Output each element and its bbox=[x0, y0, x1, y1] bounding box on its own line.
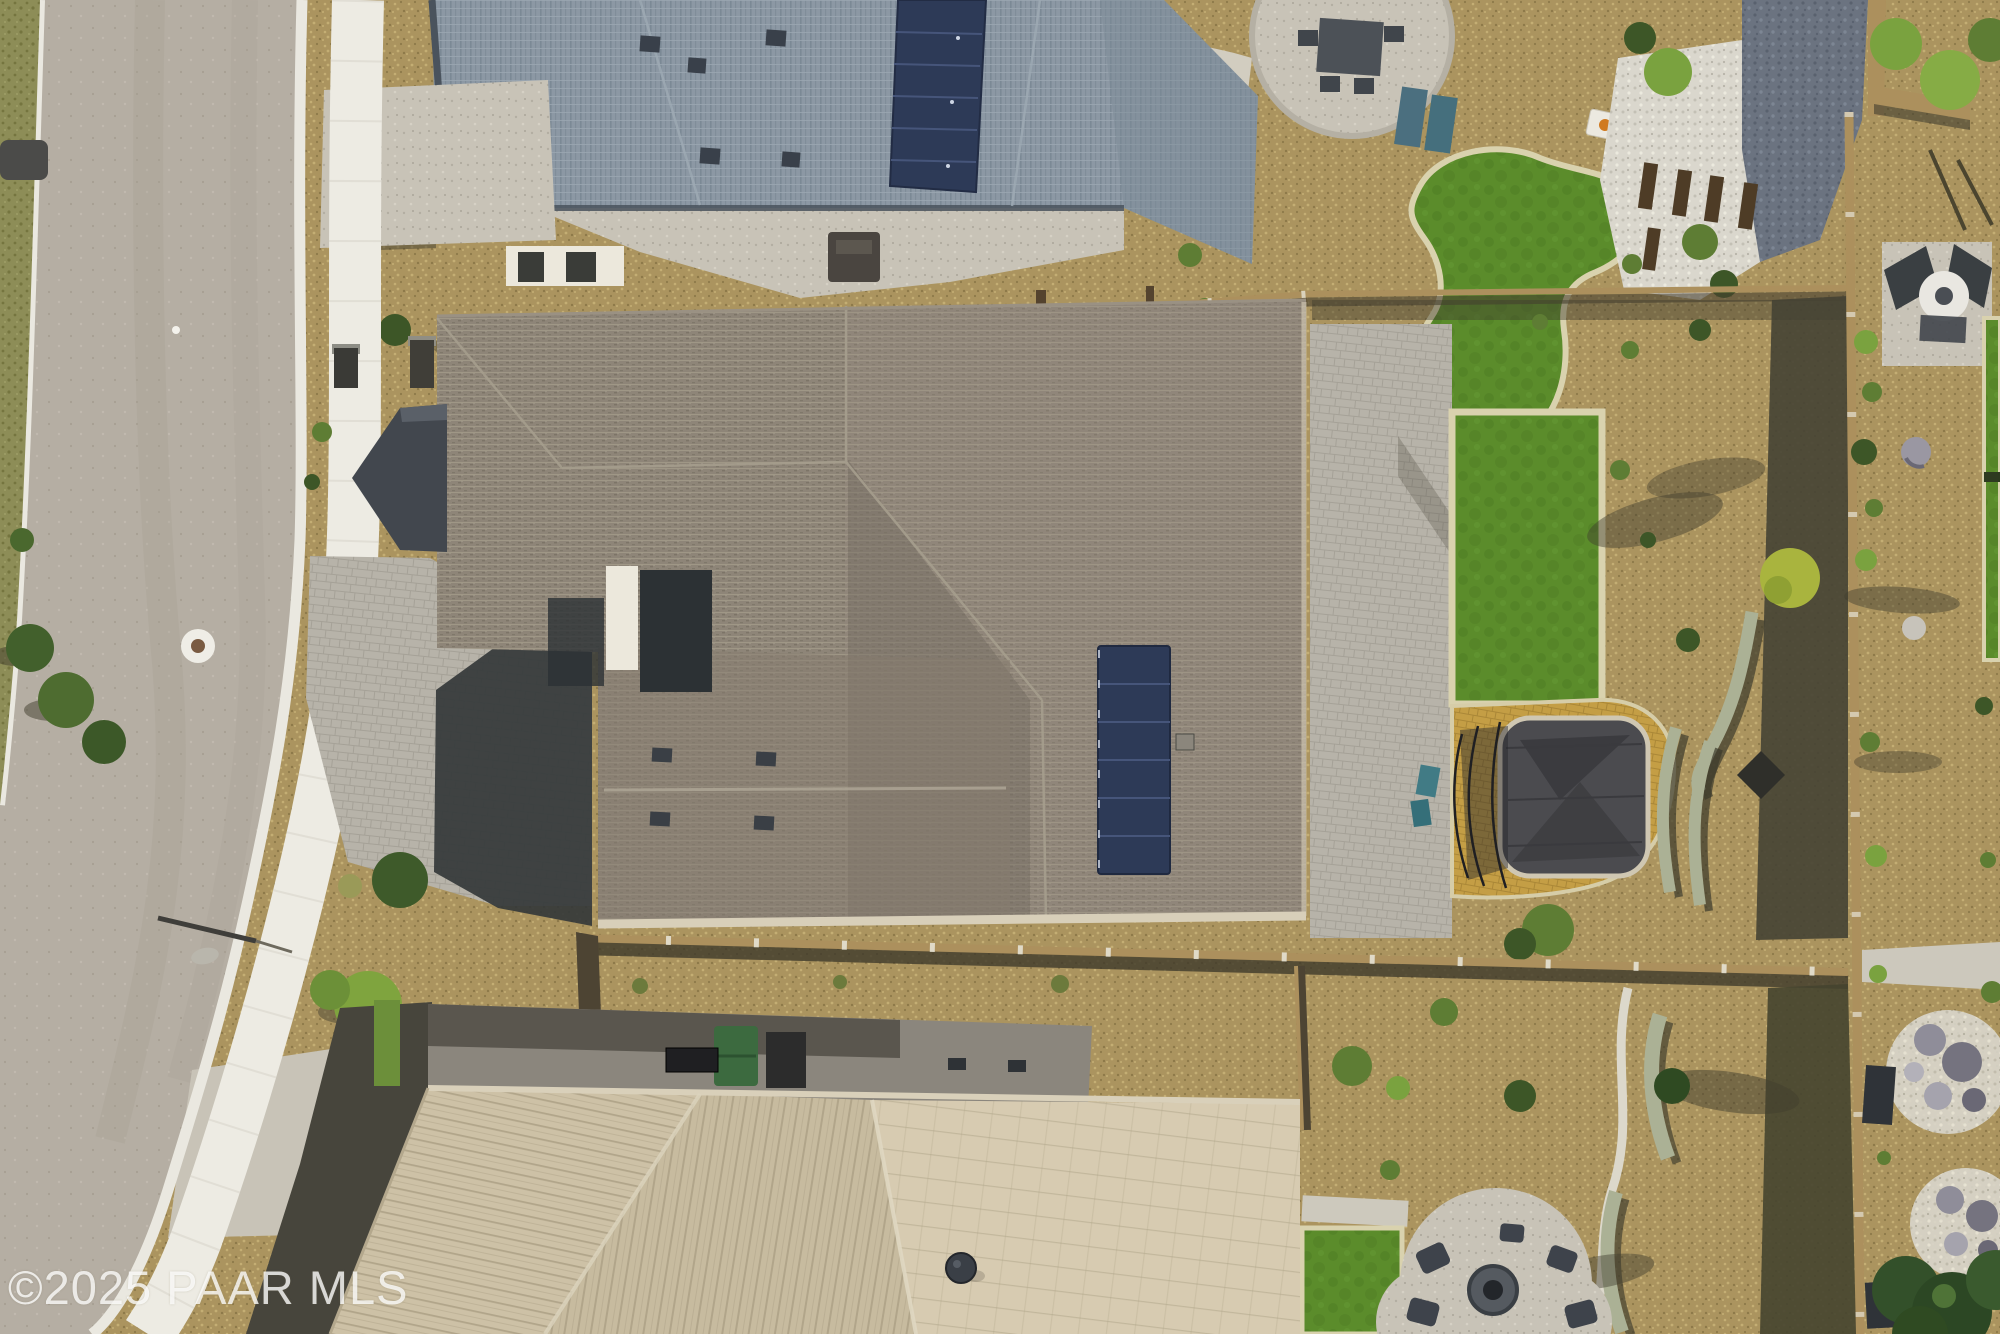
road-reflector bbox=[172, 326, 180, 334]
folding-chair bbox=[1410, 799, 1431, 827]
patio-pavers bbox=[1310, 324, 1452, 938]
shrub bbox=[1622, 254, 1642, 274]
shrub bbox=[1624, 22, 1656, 54]
center-house bbox=[306, 300, 1306, 926]
white-path bbox=[1862, 942, 2000, 990]
trampoline bbox=[1454, 718, 1648, 888]
courtyard bbox=[606, 566, 638, 670]
boulder bbox=[1902, 616, 1926, 640]
courtyard-shadow bbox=[640, 570, 712, 692]
parked-object bbox=[0, 140, 48, 180]
solar-panel-array-top bbox=[890, 0, 986, 192]
metal-bench bbox=[1862, 1065, 1896, 1125]
fence-shadow bbox=[1760, 984, 1856, 1334]
shrub bbox=[1644, 48, 1692, 96]
neighbor-turf-edge bbox=[1984, 318, 2000, 660]
rooftop-equipment bbox=[766, 1032, 806, 1088]
tile-roof-plane bbox=[872, 1100, 1300, 1334]
aerial-photo: ©2025 PAAR MLS bbox=[0, 0, 2000, 1334]
fence-shadow bbox=[1756, 296, 1848, 940]
trampoline-net bbox=[1460, 726, 1508, 880]
skylight bbox=[666, 1048, 718, 1072]
aerial-photo-canvas bbox=[0, 0, 2000, 1334]
roof-vent bbox=[1008, 1060, 1026, 1072]
roof-vent bbox=[1176, 734, 1194, 750]
satellite-dish bbox=[946, 1253, 976, 1283]
watermark: ©2025 PAAR MLS bbox=[8, 1260, 408, 1315]
shrub bbox=[312, 422, 332, 442]
hot-tub bbox=[828, 232, 880, 282]
shrub bbox=[1682, 224, 1718, 260]
roof-vent bbox=[948, 1058, 966, 1070]
side-grass bbox=[374, 1000, 400, 1086]
artificial-turf-lawn bbox=[1452, 412, 1602, 704]
boulder bbox=[1901, 437, 1931, 467]
shrub bbox=[304, 474, 320, 490]
white-path bbox=[1301, 1195, 1408, 1227]
